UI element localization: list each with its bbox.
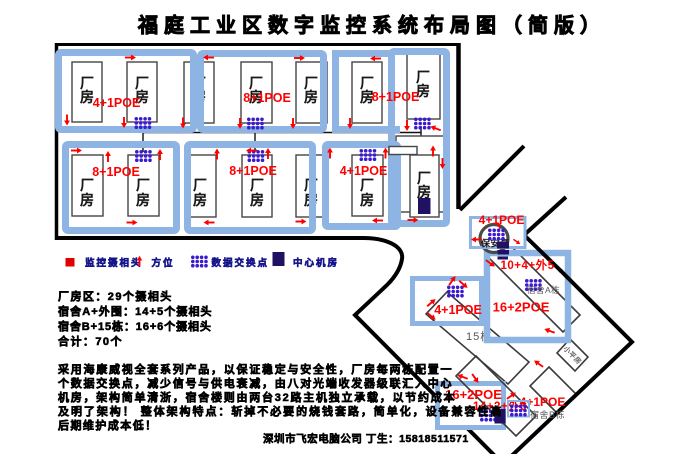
svg-text:福庭工业区数字监控系统布局图（简版）: 福庭工业区数字监控系统布局图（简版）: [137, 13, 606, 37]
svg-text:中心机房: 中心机房: [293, 257, 339, 269]
svg-text:房: 房: [304, 89, 318, 105]
svg-text:10+4+外5: 10+4+外5: [500, 258, 554, 272]
svg-text:采用海康威视全套系列产品，以保证稳定与安全性，厂房每两栋配置: 采用海康威视全套系列产品，以保证稳定与安全性，厂房每两栋配置一: [57, 362, 453, 376]
svg-text:厂: 厂: [250, 177, 264, 193]
svg-text:房: 房: [80, 192, 94, 208]
svg-text:厂: 厂: [360, 177, 374, 193]
svg-text:16+2POE: 16+2POE: [493, 300, 550, 315]
svg-text:个数据交换点，减少信号与供电衰减，由八对光端收发器级联汇入中: 个数据交换点，减少信号与供电衰减，由八对光端收发器级联汇入中心: [57, 376, 453, 390]
svg-text:深圳市飞宏电脑公司 丁生：15818511571: 深圳市飞宏电脑公司 丁生：15818511571: [263, 432, 469, 445]
svg-text:宿舍B栋: 宿舍B栋: [530, 409, 565, 420]
svg-text:厂房区：29个摄相头: 厂房区：29个摄相头: [58, 289, 173, 303]
svg-text:4+1POE: 4+1POE: [93, 96, 141, 110]
svg-text:监控摄相头: 监控摄相头: [85, 257, 143, 269]
svg-text:厂: 厂: [136, 177, 150, 193]
svg-text:宿舍A+外围：14+5个摄相头: 宿舍A+外围：14+5个摄相头: [58, 304, 213, 318]
svg-text:8+1POE: 8+1POE: [229, 164, 277, 178]
svg-text:4+1POE: 4+1POE: [479, 213, 525, 227]
svg-text:宿舍B+15栋：16+6个摄相头: 宿舍B+15栋：16+6个摄相头: [58, 319, 212, 333]
svg-text:房: 房: [360, 192, 374, 208]
svg-text:房: 房: [417, 184, 431, 200]
svg-text:8+1POE: 8+1POE: [243, 91, 291, 105]
svg-text:后期维护成本低！: 后期维护成本低！: [58, 418, 158, 432]
svg-text:8+1POE: 8+1POE: [92, 165, 140, 179]
svg-text:房: 房: [136, 192, 150, 208]
svg-text:宿舍A栋: 宿舍A栋: [527, 285, 560, 295]
svg-text:4+1POE: 4+1POE: [340, 164, 388, 178]
svg-text:房: 房: [193, 192, 207, 208]
svg-text:数据交换点: 数据交换点: [211, 257, 270, 269]
svg-text:机房，架构简单清浙，宿舍楼则由两台32路主机独立承载，以节约: 机房，架构简单清浙，宿舍楼则由两台32路主机独立承载，以节约成本: [58, 390, 456, 404]
svg-text:厂: 厂: [80, 177, 94, 193]
svg-text:4+1POE: 4+1POE: [434, 303, 482, 317]
svg-text:合计：70个: 合计：70个: [58, 334, 123, 348]
svg-text:及明了架构！ 整体架构特点：斩掉不必要的烧钱套路，简单化，设: 及明了架构！ 整体架构特点：斩掉不必要的烧钱套路，简单化，设备兼容性高: [58, 404, 503, 418]
svg-text:房: 房: [250, 192, 264, 208]
svg-text:8+1POE: 8+1POE: [372, 90, 420, 104]
svg-text:厂: 厂: [193, 177, 207, 193]
svg-text:方位: 方位: [152, 257, 175, 269]
